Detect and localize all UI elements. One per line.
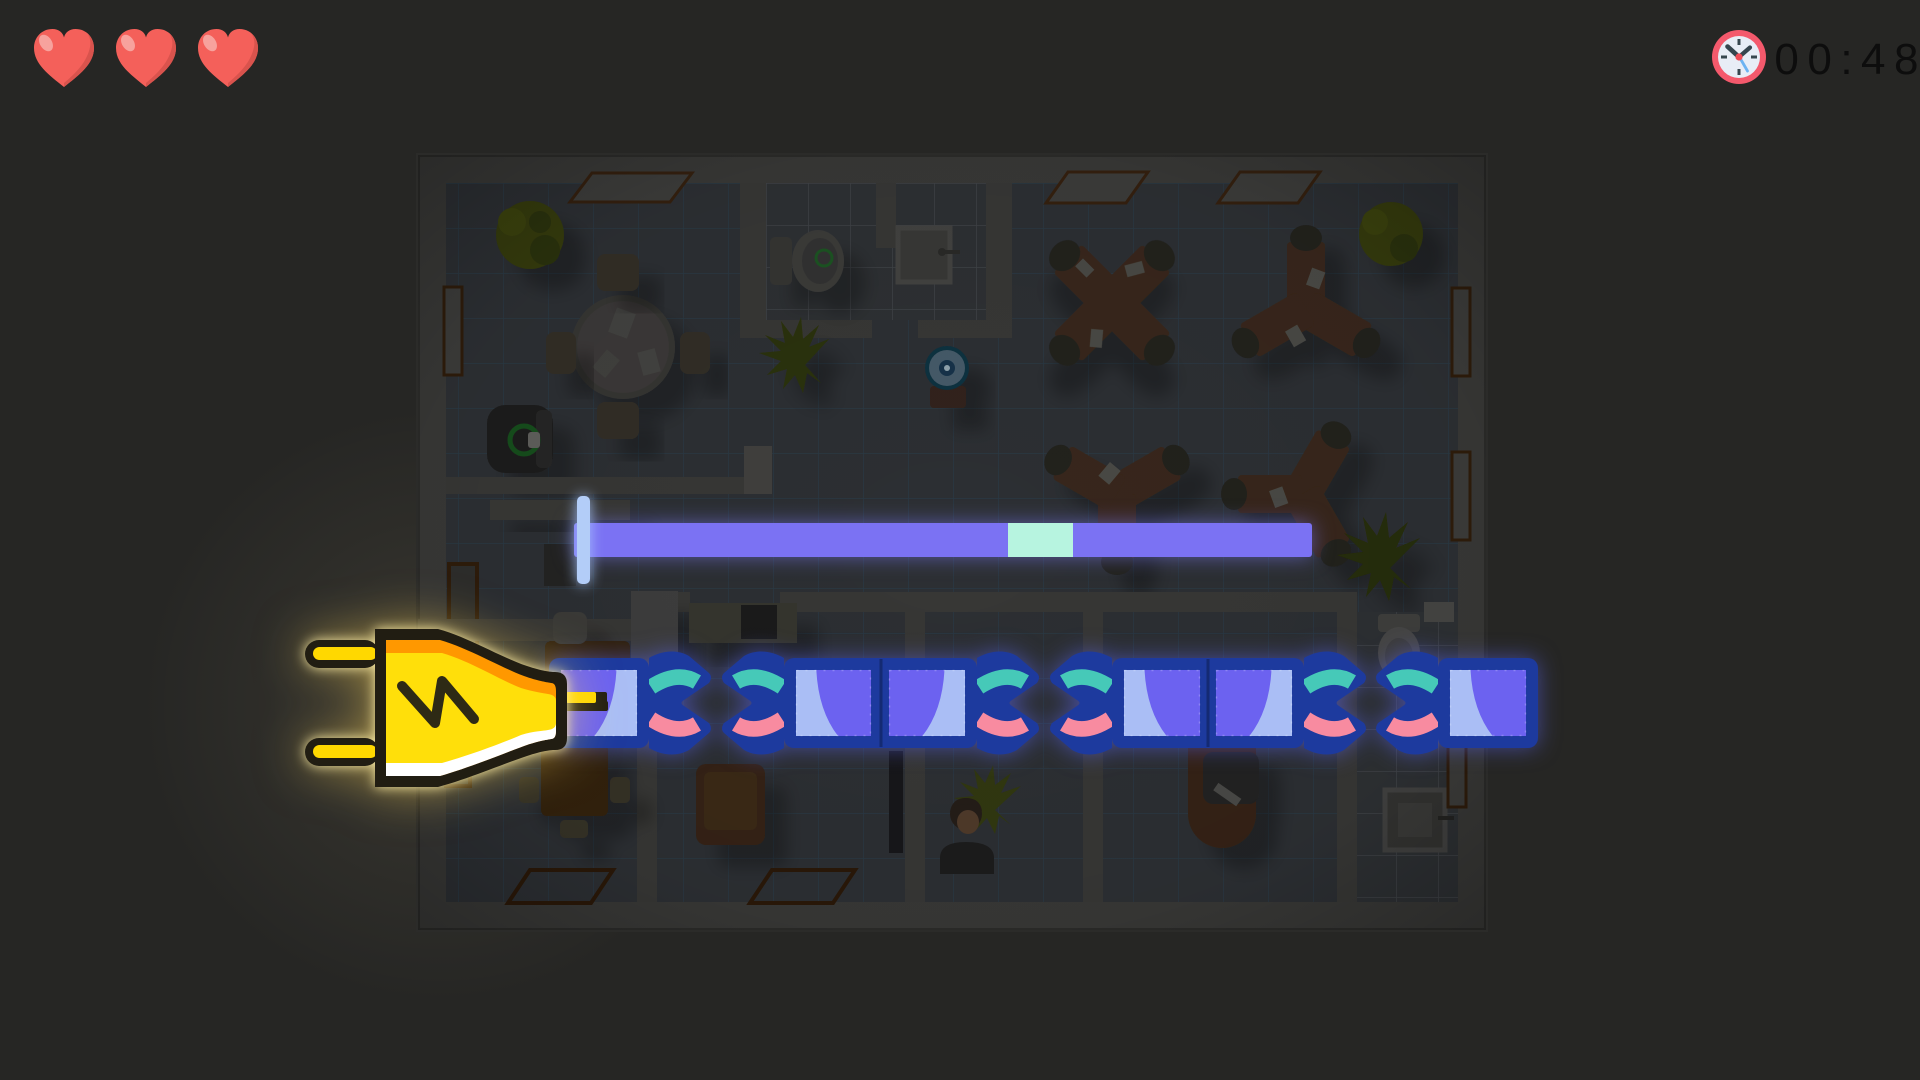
svg-text:00:48: 00:48	[1774, 35, 1920, 84]
